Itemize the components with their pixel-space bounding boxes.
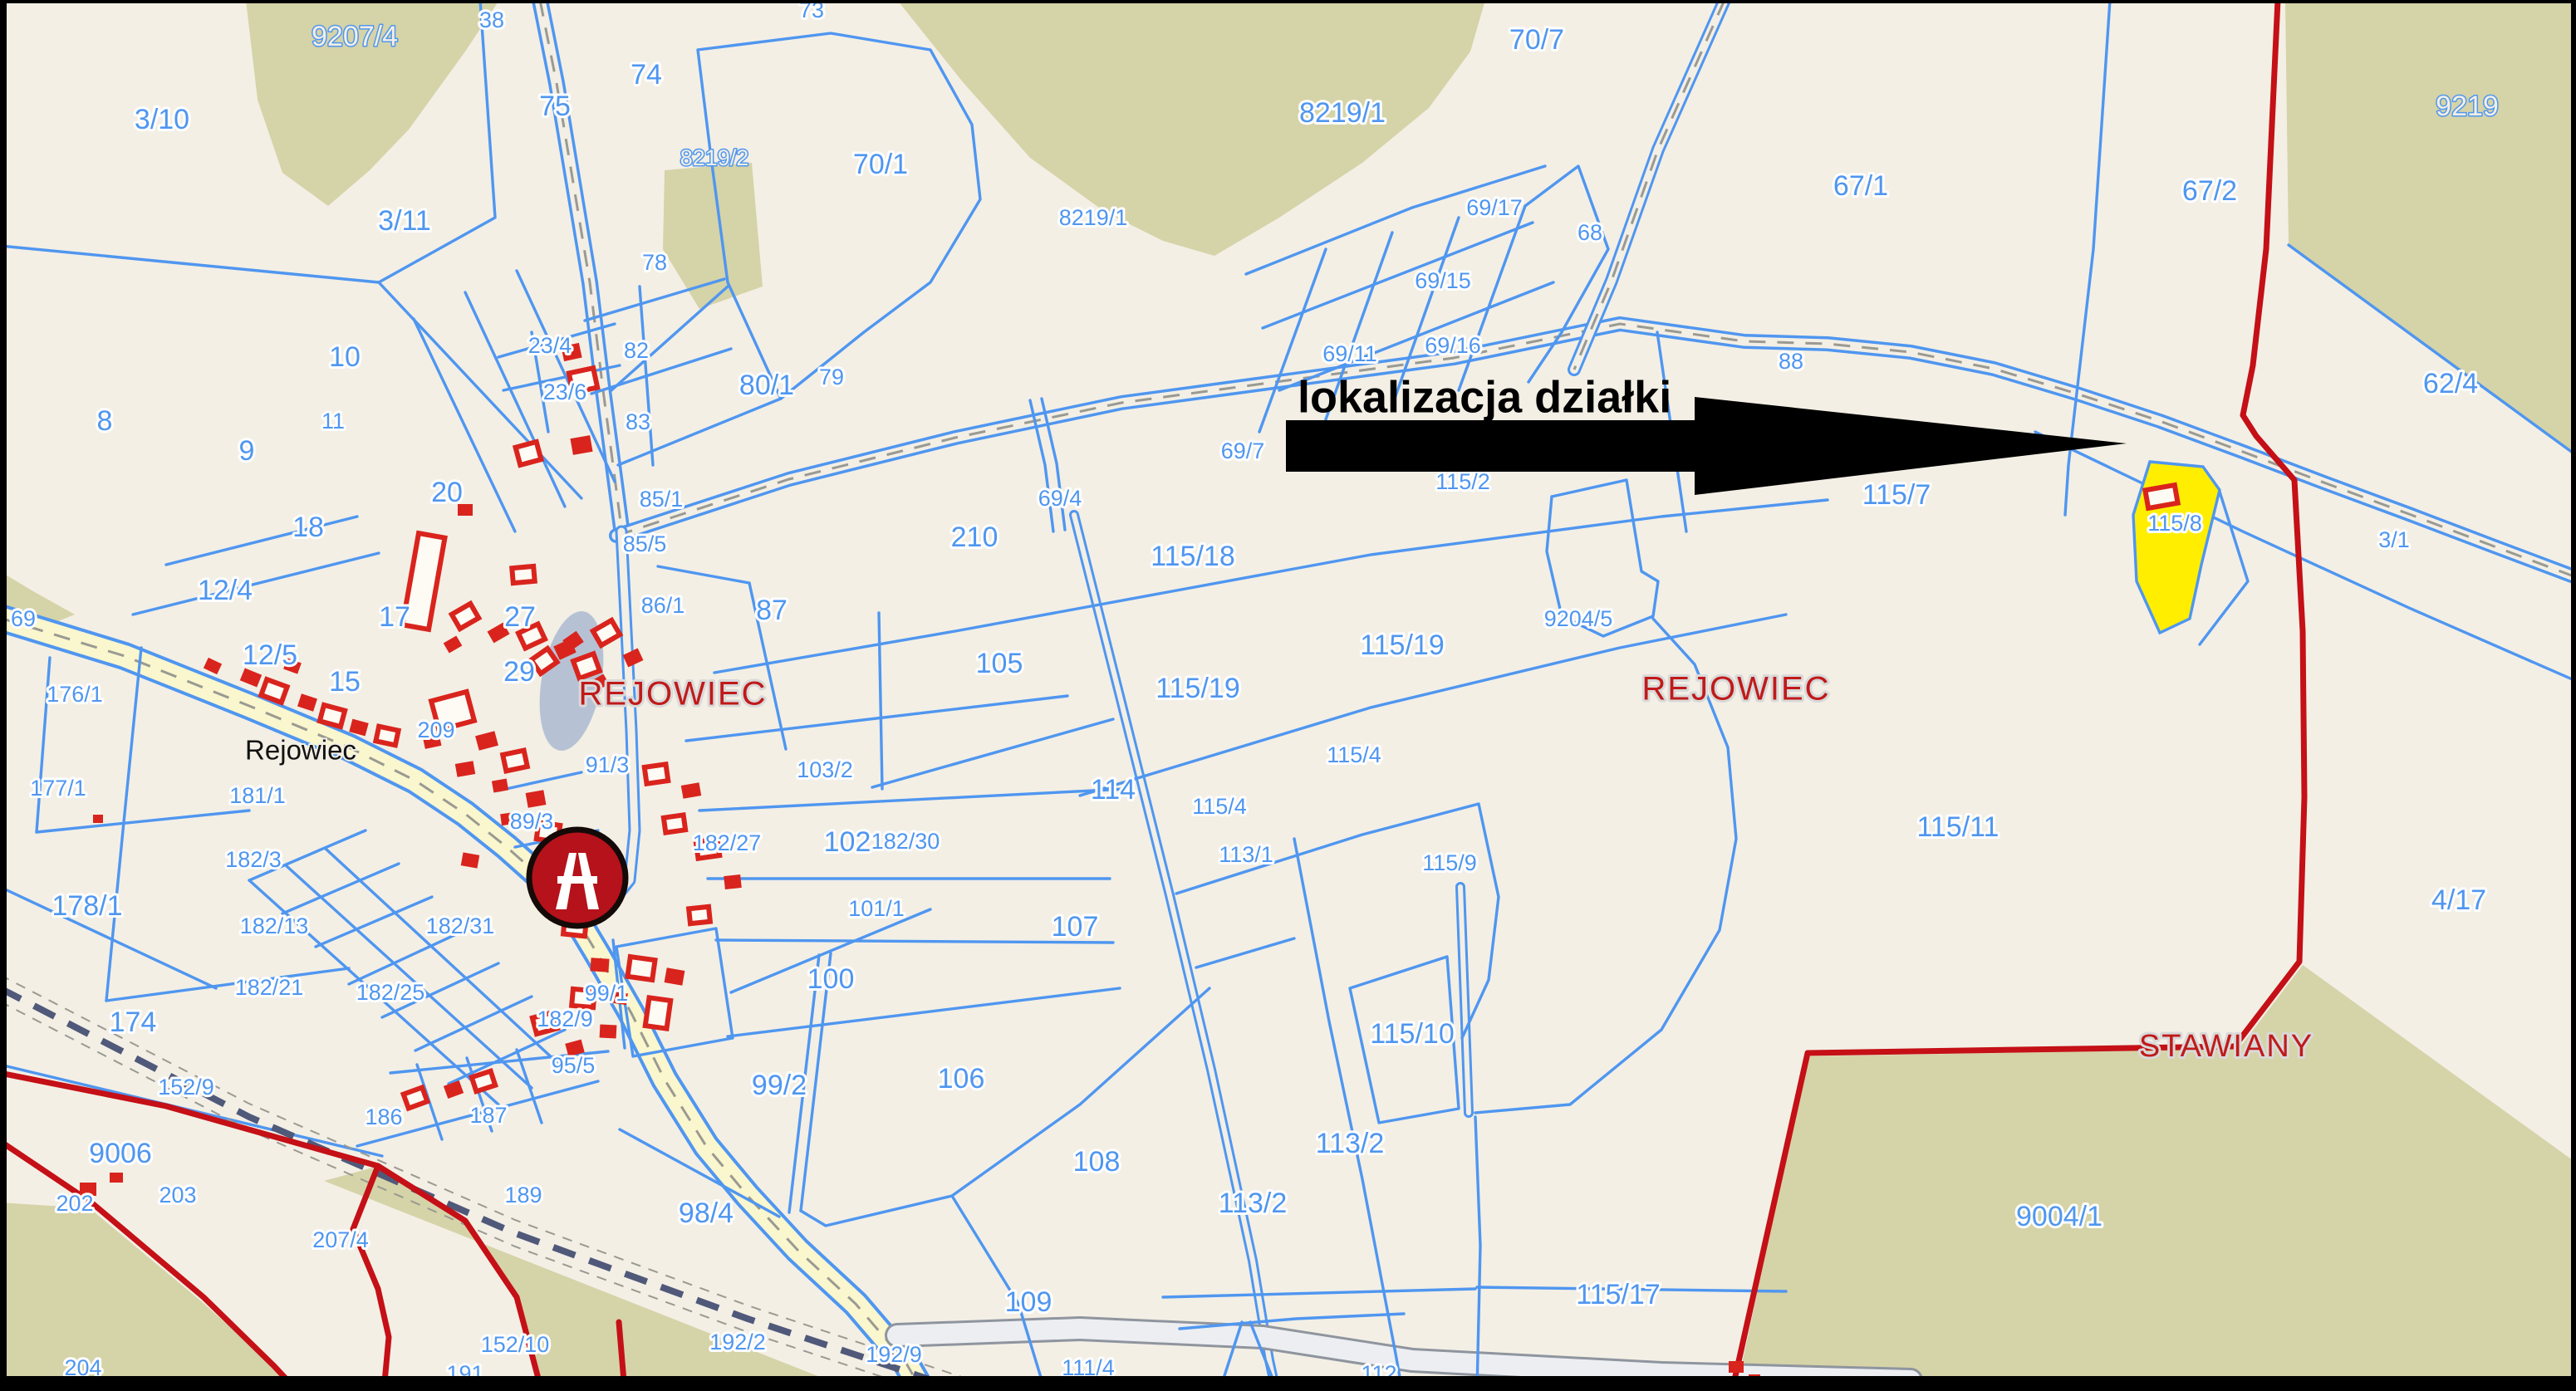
building xyxy=(600,1024,617,1038)
building xyxy=(404,1087,428,1108)
parcel-label: 115/8 xyxy=(2147,511,2202,536)
building xyxy=(627,957,655,980)
parcel-label: 9219 xyxy=(2436,91,2499,122)
parcel-label: 73 xyxy=(799,0,824,22)
parcel-label: 115/4 xyxy=(1327,742,1381,767)
parcel-label: 67/2 xyxy=(2182,175,2237,207)
place-label: REJOWIEC xyxy=(1641,671,1830,708)
parcel-label: 107 xyxy=(1052,911,1099,943)
village-label: Rejowiec xyxy=(245,735,356,766)
parcel-label: 108 xyxy=(1073,1146,1121,1178)
parcel-label: 9 xyxy=(239,435,255,467)
building xyxy=(573,654,600,678)
building xyxy=(516,442,542,465)
parcel-label: 210 xyxy=(951,522,999,553)
parcel-label: 186 xyxy=(365,1104,402,1129)
parcel-label: 83 xyxy=(626,409,650,434)
parcel-label: 9204/5 xyxy=(1544,606,1613,631)
parcel-label: 11 xyxy=(321,409,345,433)
parcel-label: 182/9 xyxy=(537,1007,593,1031)
parcel-label: 207/4 xyxy=(312,1227,369,1252)
building xyxy=(590,958,609,972)
parcel-label: 105 xyxy=(976,648,1023,679)
building xyxy=(93,815,103,823)
parcel-label: 27 xyxy=(504,601,536,633)
parcel-label: 192/9 xyxy=(866,1342,922,1367)
building xyxy=(110,1173,123,1183)
building xyxy=(320,705,345,727)
parcel-label: 20 xyxy=(431,477,463,508)
parcel-label: 187 xyxy=(469,1103,507,1128)
parcel-label: 115/2 xyxy=(1435,469,1490,494)
parcel-label: 67/1 xyxy=(1833,170,1888,202)
parcel-label: 182/13 xyxy=(240,913,309,938)
parcel-label: 10 xyxy=(329,341,361,373)
parcel-label: 182/30 xyxy=(871,829,940,854)
building xyxy=(1729,1361,1744,1373)
parcel-label: 18 xyxy=(292,512,324,543)
building xyxy=(472,1071,495,1092)
parcel-label: 74 xyxy=(631,59,662,91)
parcel-label: 99/1 xyxy=(585,981,629,1006)
building xyxy=(645,997,670,1028)
parcel-label: 209 xyxy=(417,718,454,742)
parcel-label: 115/10 xyxy=(1370,1018,1454,1050)
building xyxy=(664,815,685,832)
parcel-label: 152/9 xyxy=(158,1075,214,1100)
parcel-label: 203 xyxy=(159,1183,196,1207)
parcel-label: 115/7 xyxy=(1862,479,1931,511)
parcel-label: 113/2 xyxy=(1316,1128,1385,1159)
building xyxy=(526,790,547,808)
parcel-label: 115/18 xyxy=(1151,541,1234,572)
parcel-label: 152/10 xyxy=(481,1332,550,1357)
parcel-label: 3/1 xyxy=(2378,527,2410,552)
parcel-label: 8219/1 xyxy=(1299,97,1386,129)
building xyxy=(375,727,398,746)
building xyxy=(261,679,287,703)
parcel-label: 69/4 xyxy=(1038,486,1082,511)
parcel-label: 75 xyxy=(539,91,571,122)
map-frame-right xyxy=(2571,0,2576,1391)
parcel-label: 79 xyxy=(819,365,844,389)
parcel-label: 15 xyxy=(329,666,361,698)
parcel-label: 106 xyxy=(938,1063,985,1095)
parcel-label: 115/11 xyxy=(1917,811,1999,843)
parcel-label: 12/5 xyxy=(243,639,297,671)
parcel-label: 182/3 xyxy=(225,847,282,872)
parcel-label: 192/2 xyxy=(709,1330,766,1354)
parcel-label: 182/27 xyxy=(693,830,762,855)
parcel-label: 88 xyxy=(1779,349,1803,374)
parcel-label: 23/4 xyxy=(528,333,572,358)
parcel-label: 102 xyxy=(824,826,871,858)
parcel-label: 78 xyxy=(642,250,667,275)
place-label: STAWIANY xyxy=(2139,1029,2313,1064)
map-frame-left xyxy=(0,0,7,1391)
map-canvas: 9207/4387374753/1070/18219/23/11788219/1… xyxy=(0,0,2576,1391)
building xyxy=(503,751,527,771)
parcel-label: 82 xyxy=(624,338,649,363)
parcel-label: 115/9 xyxy=(1422,850,1477,875)
parcel-label: 69/15 xyxy=(1415,268,1471,293)
parcel-label: 103/2 xyxy=(797,757,853,782)
parcel-label: 38 xyxy=(479,7,504,32)
parcel-label: 101/1 xyxy=(848,896,905,921)
parcel-label: 109 xyxy=(1005,1286,1052,1318)
parcel-label: 80/1 xyxy=(739,370,794,401)
parcel-label: 177/1 xyxy=(30,776,86,801)
parcel-label: 3/10 xyxy=(135,104,189,135)
parcel-label: 100 xyxy=(807,963,855,995)
building xyxy=(724,874,742,889)
parcel-label: 113/2 xyxy=(1219,1188,1288,1219)
parcel-label: 70/1 xyxy=(853,149,908,180)
parcel-label: 115/19 xyxy=(1360,629,1444,661)
parcel-label: 87 xyxy=(756,595,788,626)
building xyxy=(2145,485,2177,508)
parcel-label: 69/7 xyxy=(1221,438,1265,463)
parcel-label: 8219/1 xyxy=(1059,205,1128,230)
building xyxy=(570,435,592,455)
parcel-label: 85/1 xyxy=(640,487,684,512)
parcel-label: 70/7 xyxy=(1509,24,1564,56)
parcel-label: 182/25 xyxy=(356,980,425,1005)
parcel-label: 182/31 xyxy=(426,913,495,938)
parcel-label: 4/17 xyxy=(2431,884,2486,916)
parcel-label: 69/17 xyxy=(1466,195,1523,220)
parcel-label: 9006 xyxy=(89,1138,152,1169)
parcel-label: 62/4 xyxy=(2423,368,2478,399)
parcel-label: 89/3 xyxy=(510,809,554,834)
parcel-label: 114 xyxy=(1091,774,1136,806)
parcel-label: 113/1 xyxy=(1219,842,1273,867)
parcel-label: 189 xyxy=(504,1183,542,1207)
parcel-label: 12/4 xyxy=(198,575,253,606)
parcel-label: 8219/2 xyxy=(680,145,749,170)
parcel-label: 181/1 xyxy=(229,783,286,808)
parcel-label: 115/4 xyxy=(1192,794,1247,819)
parcel-label: 95/5 xyxy=(552,1053,596,1078)
parcel-label: 9207/4 xyxy=(312,21,398,52)
parcel-label: 8 xyxy=(97,405,113,437)
parcel-label: 98/4 xyxy=(679,1198,734,1229)
map-frame-top xyxy=(0,0,2576,3)
arrow-label: lokalizacja działki xyxy=(1298,372,1671,422)
parcel-label: 115/19 xyxy=(1156,673,1239,704)
parcel-label: 3/11 xyxy=(378,205,431,237)
parcel-label: 99/2 xyxy=(752,1070,807,1101)
parcel-label: 85/5 xyxy=(623,531,667,556)
parcel-label: 86/1 xyxy=(641,593,685,618)
motorway-icon-part xyxy=(557,876,597,884)
parcel-label: 69/16 xyxy=(1425,333,1481,358)
parcel-label: 23/6 xyxy=(543,380,587,404)
place-label: REJOWIEC xyxy=(578,676,767,713)
building xyxy=(461,852,479,868)
parcel-label: 182/21 xyxy=(235,975,304,1000)
cadastral-map: 9207/4387374753/1070/18219/23/11788219/1… xyxy=(0,0,2576,1391)
building xyxy=(512,566,534,583)
parcel-label: 91/3 xyxy=(586,752,630,777)
parcel-label: 68 xyxy=(1577,220,1602,245)
map-frame-bottom xyxy=(0,1376,2576,1391)
parcel-label: 9004/1 xyxy=(2016,1201,2103,1232)
parcel-label: 115/17 xyxy=(1576,1279,1660,1310)
building xyxy=(689,907,710,923)
parcel-label: 17 xyxy=(379,601,410,633)
parcel-label: 174 xyxy=(110,1007,157,1038)
building xyxy=(645,764,669,783)
parcel-label: 178/1 xyxy=(52,890,122,922)
parcel-label: 29 xyxy=(503,656,535,688)
building xyxy=(665,967,685,986)
parcel-label: 69/11 xyxy=(1322,341,1377,366)
parcel-label: 69 xyxy=(11,606,36,631)
parcel-label: 176/1 xyxy=(47,682,103,707)
parcel-label: 202 xyxy=(56,1191,93,1216)
